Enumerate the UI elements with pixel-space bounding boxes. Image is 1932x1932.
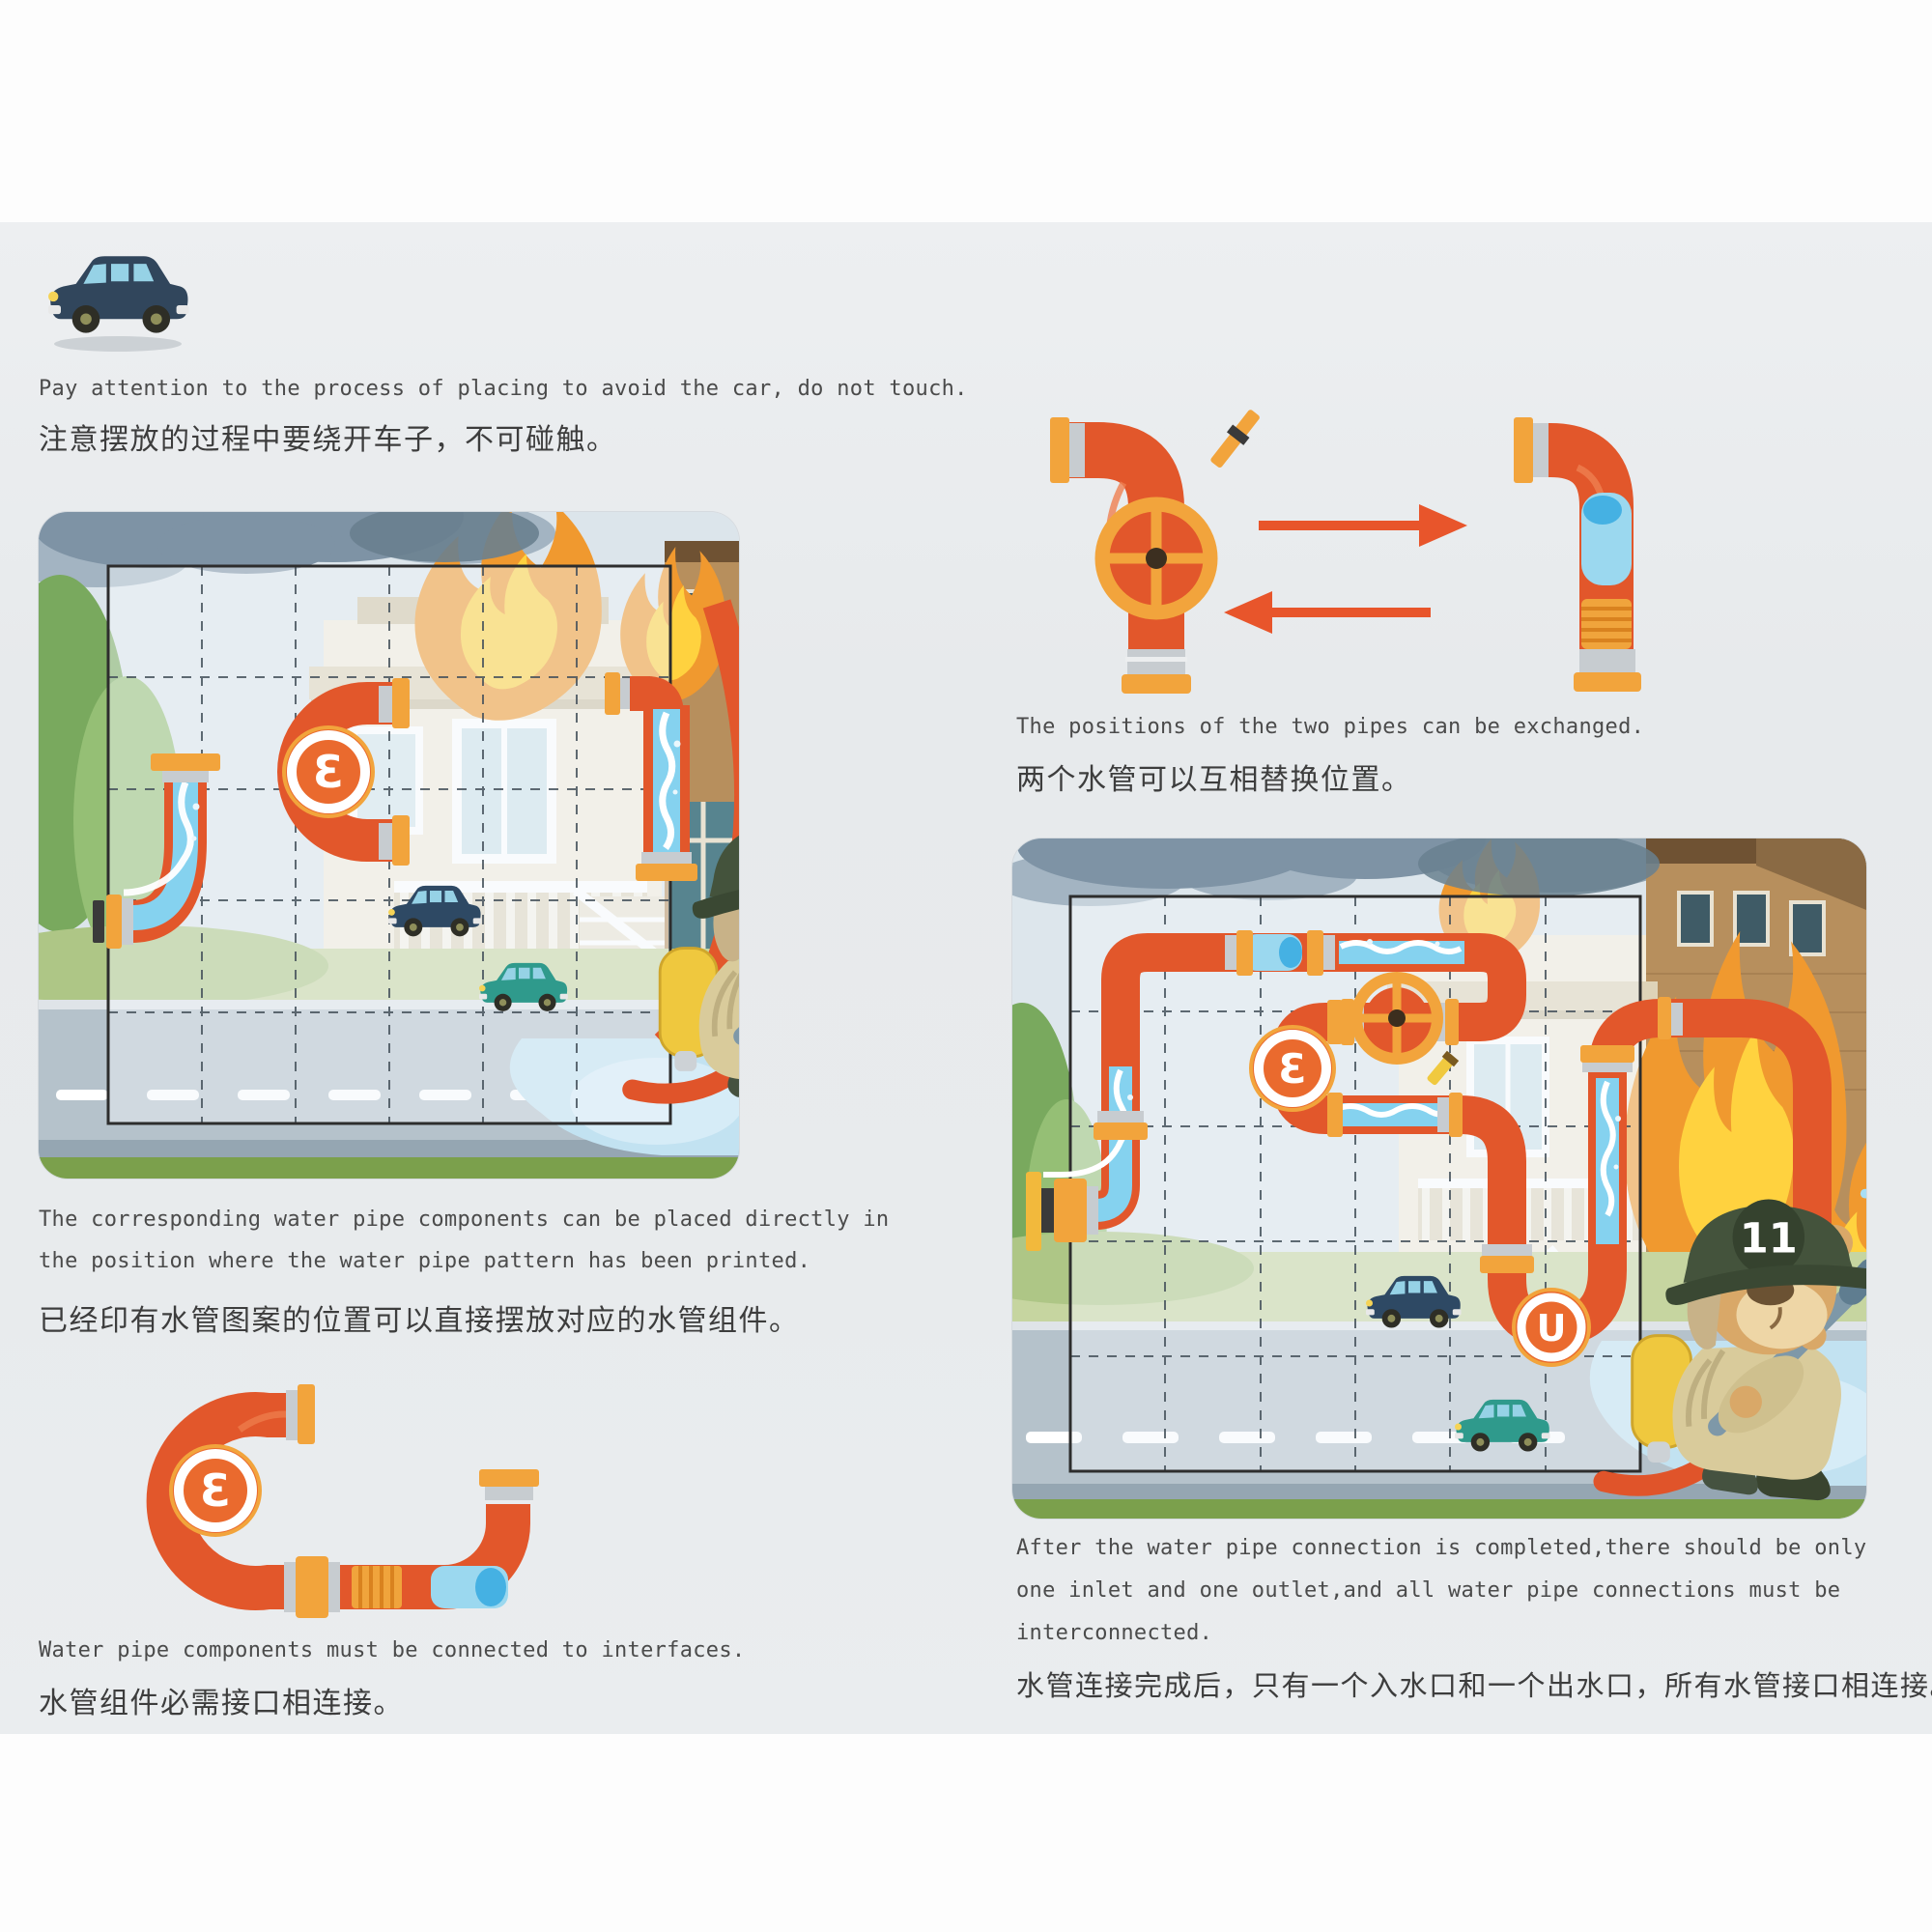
valve-pipe xyxy=(1050,407,1264,694)
completed-text-cn: 水管连接完成后，只有一个入水口和一个出水口，所有水管接口相连接。 xyxy=(1016,1663,1932,1704)
board-printed-pattern-illustration: Ɛ xyxy=(39,512,739,1179)
grid xyxy=(1070,896,1640,1471)
board-completed-illustration: Ɛ U xyxy=(1012,838,1866,1519)
avoid-car-text-en: Pay attention to the process of placing … xyxy=(39,379,968,400)
interfaces-text-cn: 水管组件必需接口相连接。 xyxy=(39,1679,404,1721)
exchange-text-en: The positions of the two pipes can be ex… xyxy=(1016,717,1644,738)
exchange-text-cn: 两个水管可以互相替换位置。 xyxy=(1016,755,1412,798)
printed-text-en-2: the position where the water pipe patter… xyxy=(39,1251,810,1272)
component-gauge-letter: Ɛ xyxy=(200,1464,231,1517)
gauge-letter: Ɛ xyxy=(313,746,344,798)
interfaces-text-en: Water pipe components must be connected … xyxy=(39,1640,745,1662)
exchange-arrows xyxy=(1224,504,1467,634)
completed-text-en-3: interconnected. xyxy=(1016,1623,1212,1644)
car-icon xyxy=(41,236,195,355)
gauge-letter: Ɛ xyxy=(1278,1045,1306,1093)
printed-text-cn: 已经印有水管图案的位置可以直接摆放对应的水管组件。 xyxy=(39,1296,800,1339)
completed-text-en-1: After the water pipe connection is compl… xyxy=(1016,1538,1866,1559)
outlet-letter: U xyxy=(1537,1307,1567,1350)
pipe-exchange-diagram xyxy=(1009,369,1690,709)
manual-page: 11 Pay attention to the process of placi… xyxy=(0,0,1932,1932)
completed-text-en-2: one inlet and one outlet,and all water p… xyxy=(1016,1580,1840,1602)
printed-text-en-1: The corresponding water pipe components … xyxy=(39,1209,889,1231)
pipe-component-illustration: Ɛ xyxy=(124,1377,611,1618)
avoid-car-text-cn: 注意摆放的过程中要绕开车子，不可碰触。 xyxy=(39,415,617,458)
board-completed-connection: Ɛ U xyxy=(1012,838,1866,1519)
window-pipe xyxy=(1514,417,1641,692)
board-printed-pattern: Ɛ xyxy=(39,512,739,1179)
